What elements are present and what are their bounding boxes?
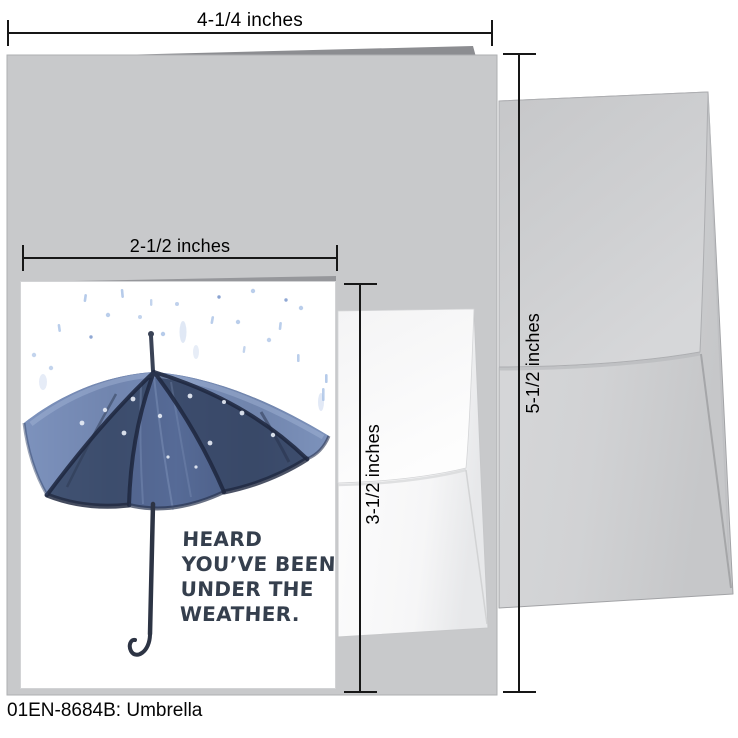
dimension-label-card-width: 4-1/4 inches: [7, 10, 493, 32]
dimension-line-insert-height: [359, 284, 361, 693]
message-line-3: UNDER THE: [180, 577, 337, 602]
greeting-message: HEARD YOU’VE BEEN UNDER THE WEATHER.: [179, 527, 338, 627]
dimension-tick: [491, 20, 493, 46]
umbrella-canopy: [24, 372, 329, 510]
product-code-label: 01EN-8684B: Umbrella: [7, 700, 202, 722]
dimension-tick: [503, 691, 536, 693]
dimension-tick: [344, 691, 377, 693]
dimension-label-envelope-height: 5-1/2 inches: [522, 313, 544, 413]
dimension-line-envelope-height: [518, 54, 520, 693]
dimension-tick: [503, 53, 536, 55]
message-line-4: WEATHER.: [179, 602, 336, 627]
dimension-tick: [7, 20, 9, 46]
dimension-line-card-width: [7, 32, 493, 34]
dimension-tick: [344, 283, 377, 285]
message-line-1: HEARD: [182, 527, 339, 552]
dimension-label-insert-height: 3-1/2 inches: [362, 424, 384, 524]
dimension-line-insert-width: [22, 257, 338, 259]
umbrella-illustration: [21, 282, 337, 690]
umbrella-ferrule: [148, 331, 154, 371]
dimension-label-insert-width: 2-1/2 inches: [22, 236, 338, 257]
dimension-tick: [336, 245, 338, 271]
umbrella-handle: [130, 504, 153, 655]
message-line-2: YOU’VE BEEN: [181, 552, 338, 577]
product-photo-page: { "product": { "code_label": "01EN-8684B…: [0, 0, 738, 738]
greeting-card-front: HEARD YOU’VE BEEN UNDER THE WEATHER.: [20, 281, 336, 689]
dimension-tick: [22, 245, 24, 271]
